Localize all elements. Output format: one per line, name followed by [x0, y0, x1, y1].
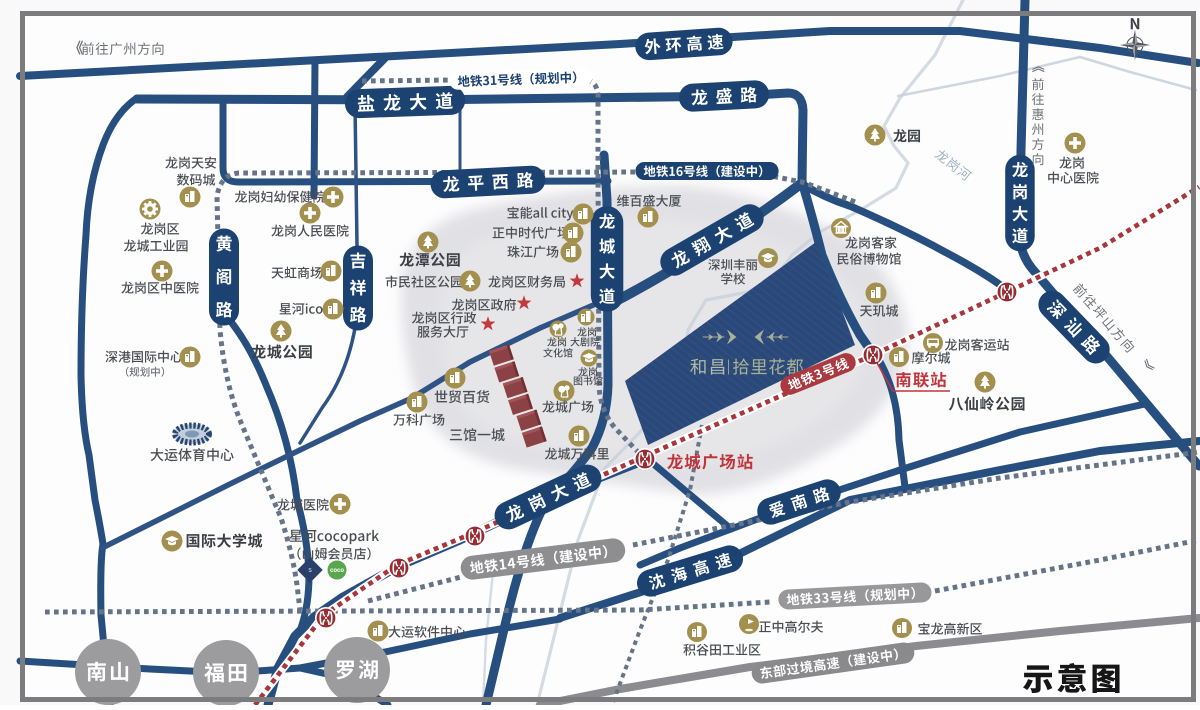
svg-text:coco: coco: [330, 568, 344, 574]
